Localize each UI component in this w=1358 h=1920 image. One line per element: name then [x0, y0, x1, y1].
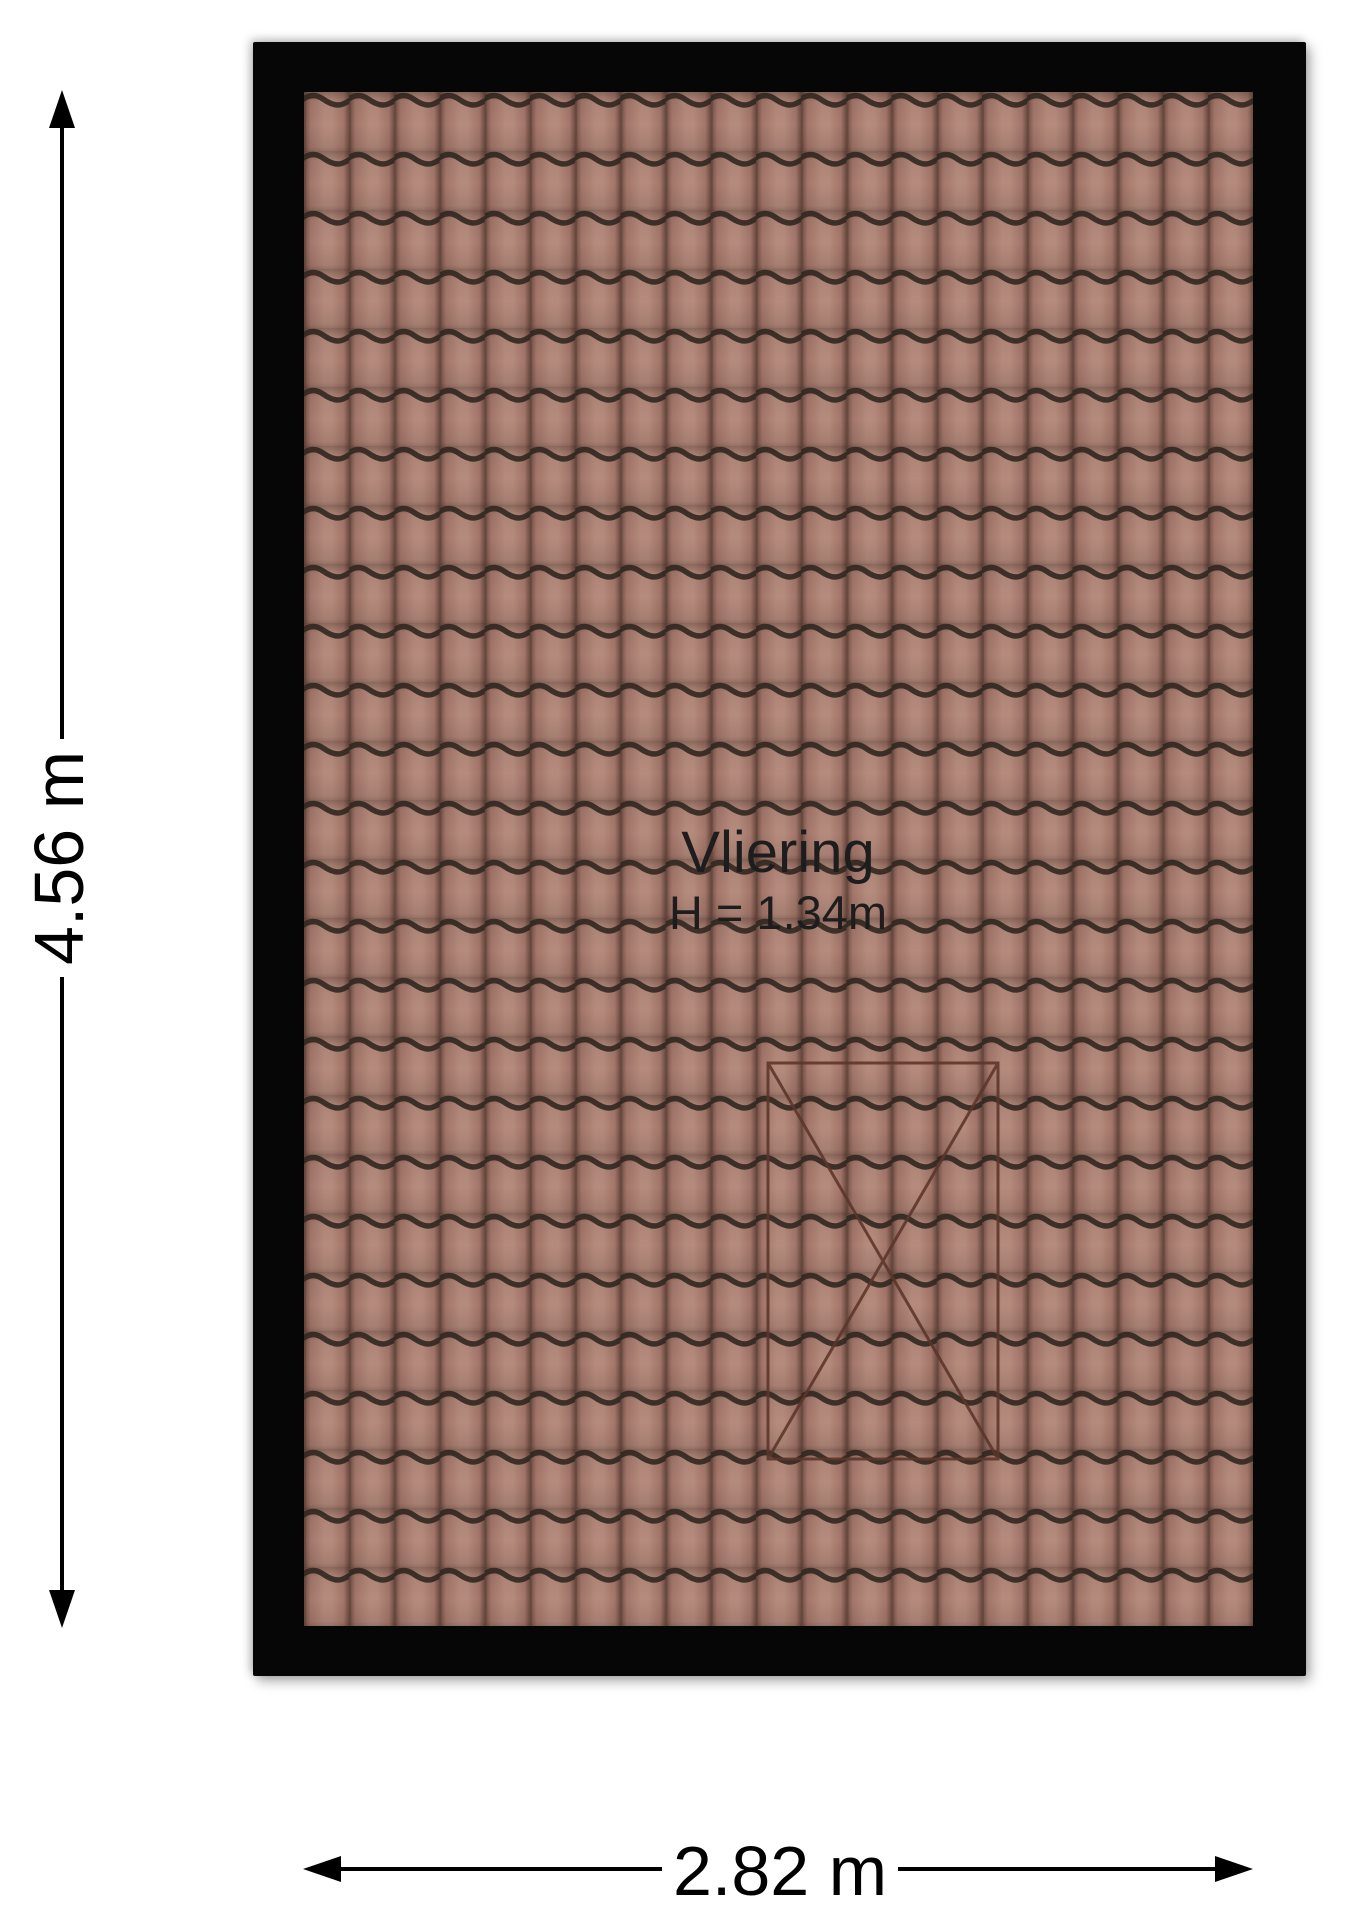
horizontal-dimension-line-right	[898, 1867, 1216, 1871]
vertical-dimension-label: 4.56 m	[19, 751, 99, 965]
room-name: Vliering	[669, 822, 887, 884]
arrow-right-icon	[1215, 1856, 1253, 1882]
room-label: Vliering H = 1.34m	[669, 822, 887, 941]
arrow-up-icon	[49, 90, 75, 128]
room-height-label: H = 1.34m	[669, 884, 887, 941]
floorplan-canvas: Vliering H = 1.34m 4.56 m 2.82 m	[0, 0, 1358, 1920]
vertical-dimension-line-top	[60, 126, 64, 739]
vertical-dimension-line-bottom	[60, 977, 64, 1591]
arrow-left-icon	[303, 1856, 341, 1882]
horizontal-dimension-line-left	[340, 1867, 662, 1871]
horizontal-dimension-label: 2.82 m	[673, 1831, 887, 1911]
arrow-down-icon	[49, 1590, 75, 1628]
